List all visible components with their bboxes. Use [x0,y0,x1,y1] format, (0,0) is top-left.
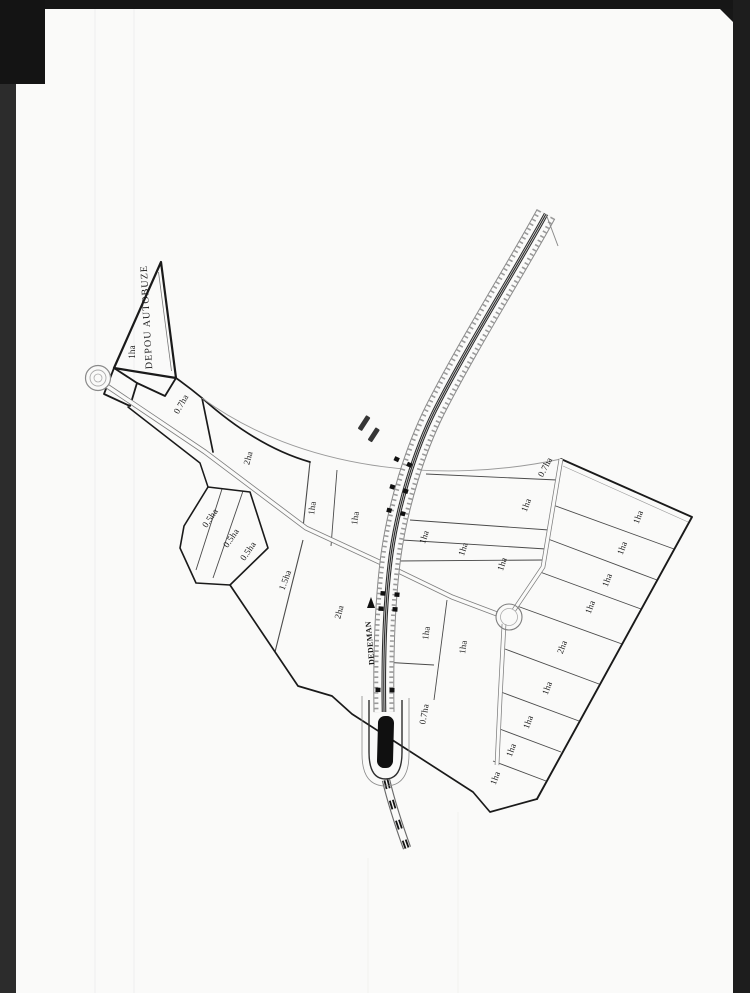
scan-border-right [733,0,750,993]
survey-stamp [358,415,380,442]
roundabout-east [496,604,522,630]
scan-border-corner-block [0,0,45,84]
parcel-division-lines [159,272,689,781]
direction-arrow-icon [367,597,375,608]
scan-border-top [0,0,750,9]
roundabout-west [86,366,111,391]
scan-border-left [0,0,16,993]
site-plan-drawing [0,0,750,993]
depot-parcel-outline [114,262,176,378]
scanned-site-plan-screen: DEPOU AUTOBUZEDEDEMAN1ha0.7ha2ha0.5ha0.5… [0,0,750,993]
arterial-arc-line [202,398,561,471]
exit-road [386,780,407,848]
